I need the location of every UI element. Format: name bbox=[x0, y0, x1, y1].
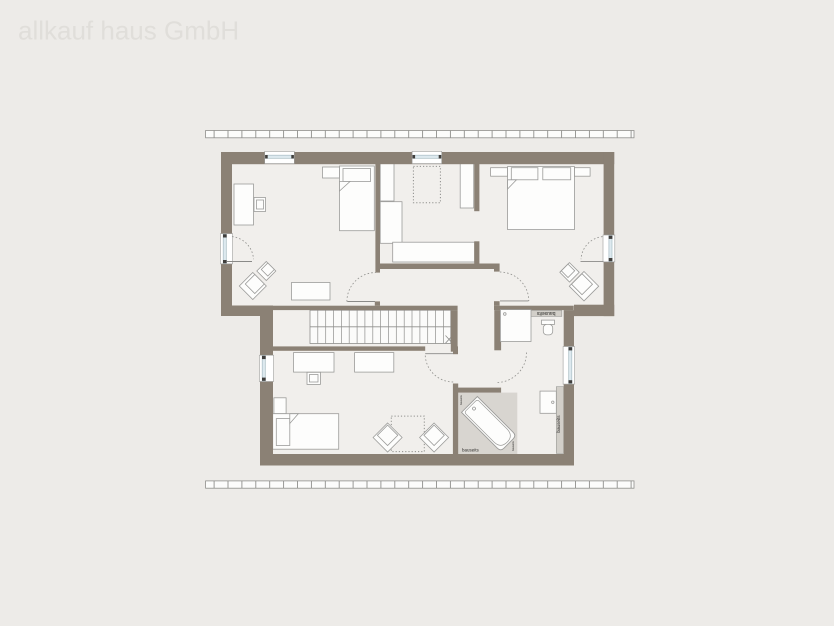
svg-text:bauseits: bauseits bbox=[511, 440, 515, 450]
svg-text:allkauf haus GmbH: allkauf haus GmbH bbox=[18, 16, 239, 46]
svg-text:bauseits: bauseits bbox=[556, 415, 561, 433]
svg-text:bauseits: bauseits bbox=[536, 310, 555, 316]
svg-text:bauseits: bauseits bbox=[462, 447, 480, 452]
svg-text:bauseits: bauseits bbox=[459, 394, 463, 404]
